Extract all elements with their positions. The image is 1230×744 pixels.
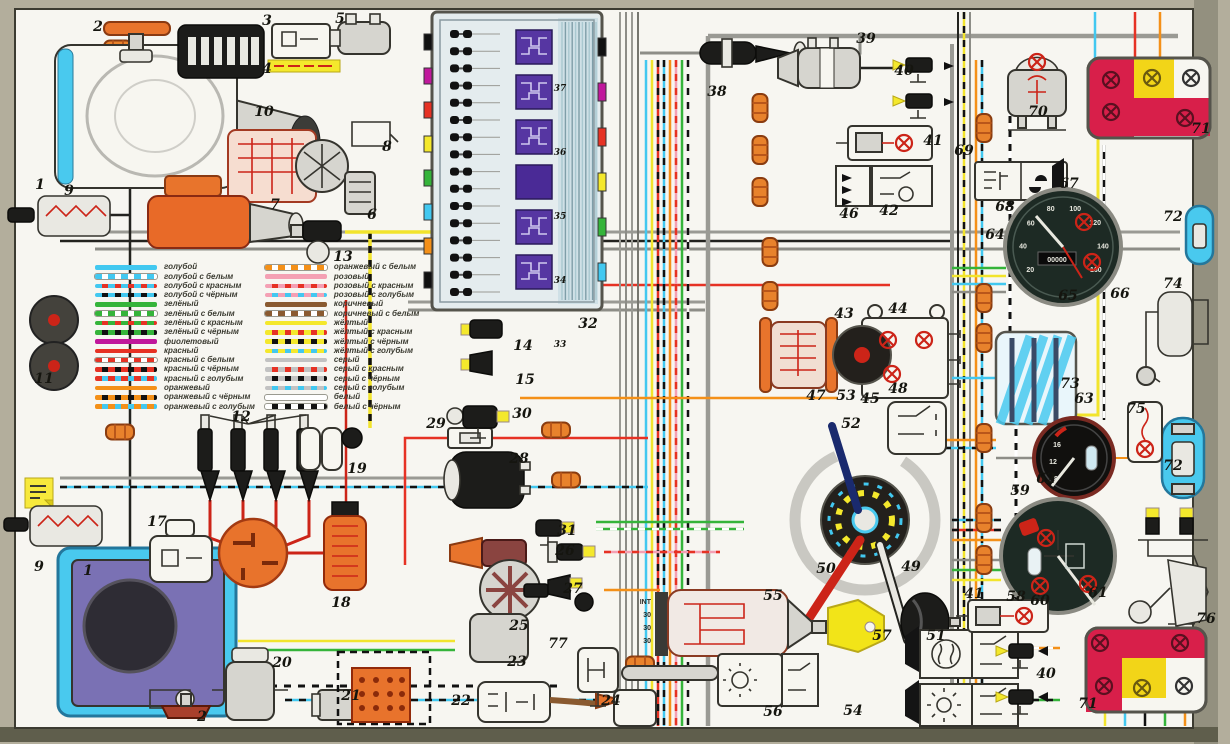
speedo-tick: 100	[1069, 206, 1081, 213]
component-number-55: 55	[763, 588, 782, 604]
component-number-75: 75	[1126, 401, 1145, 417]
legend-color-swatch	[95, 293, 157, 298]
component-number-42: 42	[879, 203, 898, 219]
legend-label: голубой с белым	[164, 273, 233, 281]
relay-48	[888, 402, 946, 454]
component-number-56: 56	[763, 704, 782, 720]
component-number-23: 23	[507, 654, 526, 670]
legend-label: розовый с голубым	[334, 291, 414, 299]
component-number-72: 72	[1163, 209, 1182, 225]
component-number-51: 51	[926, 628, 945, 644]
switch-46	[836, 166, 870, 206]
legend-color-swatch	[95, 349, 157, 354]
relay	[516, 30, 552, 64]
component-number-3: 3	[262, 13, 272, 29]
legend-color-swatch	[265, 339, 327, 344]
legend-label: розовый с красным	[334, 282, 414, 290]
connector-nub	[424, 136, 432, 152]
component-number-6: 6	[367, 207, 377, 223]
horn-bottom	[4, 506, 102, 546]
component-number-64: 64	[985, 227, 1004, 243]
component-number-73: 73	[1060, 376, 1079, 392]
component-number-71: 71	[1191, 121, 1210, 137]
component-number-22: 22	[451, 693, 470, 709]
component-number-58: 58	[1006, 589, 1025, 605]
voltmeter-tick: 12	[1049, 459, 1057, 466]
component-number-15: 15	[515, 372, 534, 388]
connector-nub	[424, 170, 432, 186]
legend-row: серый с чёрным	[265, 374, 419, 383]
component-number-33: 33	[554, 340, 567, 350]
speedo-tick: 60	[1027, 220, 1035, 227]
legend-color-swatch	[95, 330, 157, 335]
harness-connector	[977, 424, 992, 452]
component-number-35: 35	[554, 212, 567, 222]
component-number-63: 63	[1074, 391, 1093, 407]
odometer: 00000	[1047, 257, 1067, 264]
component-number-21: 21	[341, 688, 360, 704]
legend-label: жёлтый с чёрным	[334, 338, 409, 346]
legend-row: голубой с красным	[95, 282, 255, 291]
component-number-54: 54	[843, 703, 862, 719]
fuse-box-32	[424, 12, 606, 310]
legend-label: коричневый	[334, 300, 383, 308]
component-number-26: 26	[555, 543, 574, 559]
component-number-50: 50	[816, 561, 835, 577]
legend-color-swatch	[265, 386, 327, 391]
legend-color-swatch	[95, 404, 157, 409]
component-number-40: 40	[894, 63, 913, 79]
coil-18	[324, 502, 366, 590]
legend-row: белый с чёрным	[265, 402, 419, 411]
component-number-31: 31	[557, 523, 576, 539]
legend-label: зелёный с красным	[164, 319, 243, 327]
component-number-36: 36	[554, 148, 567, 158]
legend-row: оранжевый	[95, 384, 255, 393]
legend-row: голубой с чёрным	[95, 291, 255, 300]
component-number-40: 40	[1036, 666, 1055, 682]
component-number-7: 7	[270, 197, 280, 213]
component-number-20: 20	[272, 655, 291, 671]
legend-color-swatch	[95, 358, 157, 363]
legend-label: розовый	[334, 273, 369, 281]
component-number-41: 41	[923, 133, 942, 149]
wiper-motor-74	[1137, 292, 1208, 385]
legend-row: зелёный с красным	[95, 319, 255, 328]
component-number-72: 72	[1163, 458, 1182, 474]
speedo-tick: 20	[1026, 267, 1034, 274]
legend-color-swatch	[95, 311, 157, 316]
fuel-sender-76	[1129, 508, 1208, 626]
relay	[516, 165, 552, 199]
light-switch-54	[905, 680, 1018, 726]
legend-color-swatch	[95, 395, 157, 400]
component-number-38: 38	[707, 84, 726, 100]
harness-connector	[753, 94, 768, 122]
legend-color-swatch	[265, 274, 327, 279]
legend-row: серый	[265, 356, 419, 365]
legend-row: оранжевый с чёрным	[95, 393, 255, 402]
legend-color-swatch	[95, 339, 157, 344]
relay	[516, 75, 552, 109]
sensor-15	[461, 351, 492, 375]
harness-connector	[753, 178, 768, 206]
legend-label: белый	[334, 393, 360, 401]
component-number-27: 27	[563, 581, 582, 597]
legend-label: серый с голубым	[334, 384, 404, 392]
component-number-47: 47	[806, 388, 825, 404]
voltmeter-tick: 16	[1053, 442, 1061, 449]
relay	[516, 210, 552, 244]
component-number-52: 52	[841, 416, 860, 432]
connector-nub	[424, 238, 432, 254]
legend-label: голубой с красным	[164, 282, 241, 290]
legend-label: красный	[164, 347, 198, 355]
component-number-66: 66	[1110, 286, 1129, 302]
wiring-diagram-page: INT303030	[0, 0, 1230, 744]
component-number-9: 9	[64, 183, 74, 199]
alternator	[228, 130, 348, 202]
legend-label: серый с чёрным	[334, 375, 400, 383]
harness-connector	[977, 114, 992, 142]
legend-row: красный с голубым	[95, 374, 255, 383]
component-number-49: 49	[901, 559, 920, 575]
legend-row: розовый с красным	[265, 282, 419, 291]
legend-color-swatch	[265, 349, 327, 354]
legend-label: оранжевый с чёрным	[164, 393, 250, 401]
ignition-terminal-label: INT	[640, 599, 652, 606]
component-number-39: 39	[856, 31, 875, 47]
component-number-18: 18	[331, 595, 350, 611]
connector-nub	[424, 102, 432, 118]
component-number-46: 46	[839, 206, 858, 222]
legend-label: красный с голубым	[164, 375, 243, 383]
component-number-57: 57	[872, 628, 891, 644]
legend-row: жёлтый с красным	[265, 328, 419, 337]
component-number-59: 59	[1010, 483, 1029, 499]
legend-row: фиолетовый	[95, 337, 255, 346]
legend-color-swatch	[95, 376, 157, 381]
component-number-68: 68	[995, 199, 1014, 215]
ignition-terminal-label: 30	[643, 612, 651, 619]
component-number-76: 76	[1196, 611, 1215, 627]
connector-nub	[424, 34, 432, 50]
component-number-12: 12	[231, 409, 250, 425]
harness-connector	[753, 136, 768, 164]
component-number-48: 48	[888, 381, 907, 397]
legend-row: жёлтый с чёрным	[265, 337, 419, 346]
legend-row: серый с голубым	[265, 384, 419, 393]
distributor-cap	[219, 519, 287, 587]
legend-row: коричневый с белым	[265, 309, 419, 318]
legend-color-swatch	[95, 386, 157, 391]
component-number-28: 28	[509, 451, 528, 467]
legend-color-swatch	[95, 367, 157, 372]
legend-row: зелёный с белым	[95, 309, 255, 318]
sensor-14	[461, 320, 502, 338]
relay-41-top	[836, 126, 932, 160]
legend-color-swatch	[265, 284, 327, 289]
legend-label: зелёный	[164, 300, 199, 308]
legend-label: жёлтый с голубым	[334, 347, 413, 355]
legend-color-swatch	[95, 302, 157, 307]
legend-color-swatch	[95, 284, 157, 289]
connector-nub	[424, 204, 432, 220]
legend-row: голубой	[95, 263, 255, 272]
legend-row: розовый с голубым	[265, 291, 419, 300]
legend-color-swatch	[265, 311, 327, 316]
wire	[284, 500, 309, 546]
legend-label: голубой с чёрным	[164, 291, 238, 299]
component-number-30: 30	[512, 406, 531, 422]
harness-connector	[977, 546, 992, 574]
component-number-65: 65	[1058, 288, 1077, 304]
aux-fuse-block	[178, 25, 264, 78]
component-number-24: 24	[601, 693, 620, 709]
component-number-77: 77	[548, 636, 567, 652]
component-number-8: 8	[382, 139, 392, 155]
harness-connector	[552, 473, 580, 488]
legend-label: красный с чёрным	[164, 365, 239, 373]
component-number-53: 53	[836, 388, 855, 404]
component-number-17: 17	[147, 514, 166, 530]
heater-motor-39	[778, 38, 860, 88]
legend-row: жёлтый	[265, 319, 419, 328]
relay	[516, 120, 552, 154]
legend-label: серый с красным	[334, 365, 404, 373]
legend-row: серый с красным	[265, 365, 419, 374]
legend-column-right: оранжевый с белымрозовыйрозовый с красны…	[265, 263, 419, 411]
wire	[405, 438, 448, 565]
legend-label: зелёный с чёрным	[164, 328, 239, 336]
legend-color-swatch	[265, 265, 327, 270]
legend-color-swatch	[265, 293, 327, 298]
legend-row: красный с чёрным	[95, 365, 255, 374]
component-number-11: 11	[34, 371, 53, 387]
legend-label: белый с чёрным	[334, 403, 401, 411]
connector-nub	[424, 68, 432, 84]
legend-label: красный с белым	[164, 356, 235, 364]
legend-color-swatch	[95, 274, 157, 279]
legend-label: зелёный с белым	[164, 310, 235, 318]
ignition-terminal-label: 30	[643, 625, 651, 632]
speedo-tick: 140	[1097, 243, 1109, 250]
component-number-14: 14	[513, 338, 532, 354]
legend-color-swatch	[265, 358, 327, 363]
legend-label: серый	[334, 356, 360, 364]
component-number-10: 10	[254, 104, 273, 120]
component-number-60: 60	[1030, 593, 1049, 609]
legend-column-left: голубойголубой с белымголубой с краснымг…	[95, 263, 255, 411]
legend-label: коричневый с белым	[334, 310, 419, 318]
component-number-19: 19	[347, 461, 366, 477]
component-number-34: 34	[554, 276, 567, 286]
legend-label: голубой	[164, 263, 197, 271]
legend-row: красный	[95, 347, 255, 356]
component-number-67: 67	[1059, 176, 1078, 192]
component-number-29: 29	[426, 416, 445, 432]
legend-color-swatch	[265, 321, 327, 326]
component-number-1: 1	[35, 177, 45, 193]
legend-label: жёлтый с красным	[334, 328, 412, 336]
legend-color-swatch	[95, 265, 157, 270]
legend-label: оранжевый	[164, 384, 210, 392]
relay	[516, 255, 552, 289]
legend-row: голубой с белым	[95, 272, 255, 281]
component-number-1: 1	[83, 563, 93, 579]
wiper-motor-25	[450, 538, 540, 662]
legend-color-swatch	[265, 302, 327, 307]
legend-color-swatch	[265, 395, 327, 400]
component-number-25: 25	[509, 618, 528, 634]
component-number-62: 62	[1036, 471, 1055, 487]
harness-connector	[106, 425, 134, 440]
component-number-69: 69	[954, 143, 973, 159]
component-number-61: 61	[1088, 585, 1107, 601]
legend-color-swatch	[265, 330, 327, 335]
component-number-4: 4	[262, 61, 272, 77]
legend-row: коричневый	[265, 300, 419, 309]
legend-row: зелёный с чёрным	[95, 328, 255, 337]
connector-nub	[424, 272, 432, 288]
legend-row: белый	[265, 393, 419, 402]
component-number-71: 71	[1078, 696, 1097, 712]
component-number-74: 74	[1163, 276, 1182, 292]
legend-color-swatch	[95, 321, 157, 326]
note-icon	[25, 478, 53, 508]
legend-color-swatch	[265, 376, 327, 381]
legend-color-swatch	[265, 367, 327, 372]
legend-row: красный с белым	[95, 356, 255, 365]
speedo-tick: 80	[1047, 206, 1055, 213]
harness-connector	[763, 282, 778, 310]
switch-42	[872, 166, 932, 206]
legend-label: жёлтый	[334, 319, 368, 327]
wire-color-legend: голубойголубой с белымголубой с краснымг…	[95, 263, 407, 411]
legend-color-swatch	[265, 404, 327, 409]
ignition-switch-55: INT303030	[640, 590, 884, 656]
component-number-44: 44	[888, 301, 907, 317]
legend-row: зелёный	[95, 300, 255, 309]
component-number-9: 9	[34, 559, 44, 575]
component-number-37: 37	[554, 84, 567, 94]
component-number-45: 45	[860, 391, 879, 407]
harness-connector	[977, 324, 992, 352]
component-number-13: 13	[333, 249, 352, 265]
ignition-terminal-label: 30	[643, 638, 651, 645]
legend-row: жёлтый с голубым	[265, 347, 419, 356]
component-number-43: 43	[834, 306, 853, 322]
component-number-5: 5	[335, 11, 345, 27]
legend-row: розовый	[265, 272, 419, 281]
harness-connector	[542, 423, 570, 438]
legend-label: фиолетовый	[164, 338, 219, 346]
component-number-41: 41	[964, 586, 983, 602]
harness-connector	[977, 284, 992, 312]
horn-top	[8, 196, 110, 236]
harness-connector	[977, 504, 992, 532]
component-number-2: 2	[93, 19, 103, 35]
component-number-70: 70	[1028, 104, 1047, 120]
harness-connector	[763, 238, 778, 266]
component-number-2: 2	[197, 709, 207, 725]
speedo-tick: 40	[1019, 244, 1027, 251]
side-marker-72-top	[1186, 206, 1213, 264]
wiper-relay-47	[760, 318, 891, 392]
component-number-32: 32	[578, 316, 597, 332]
